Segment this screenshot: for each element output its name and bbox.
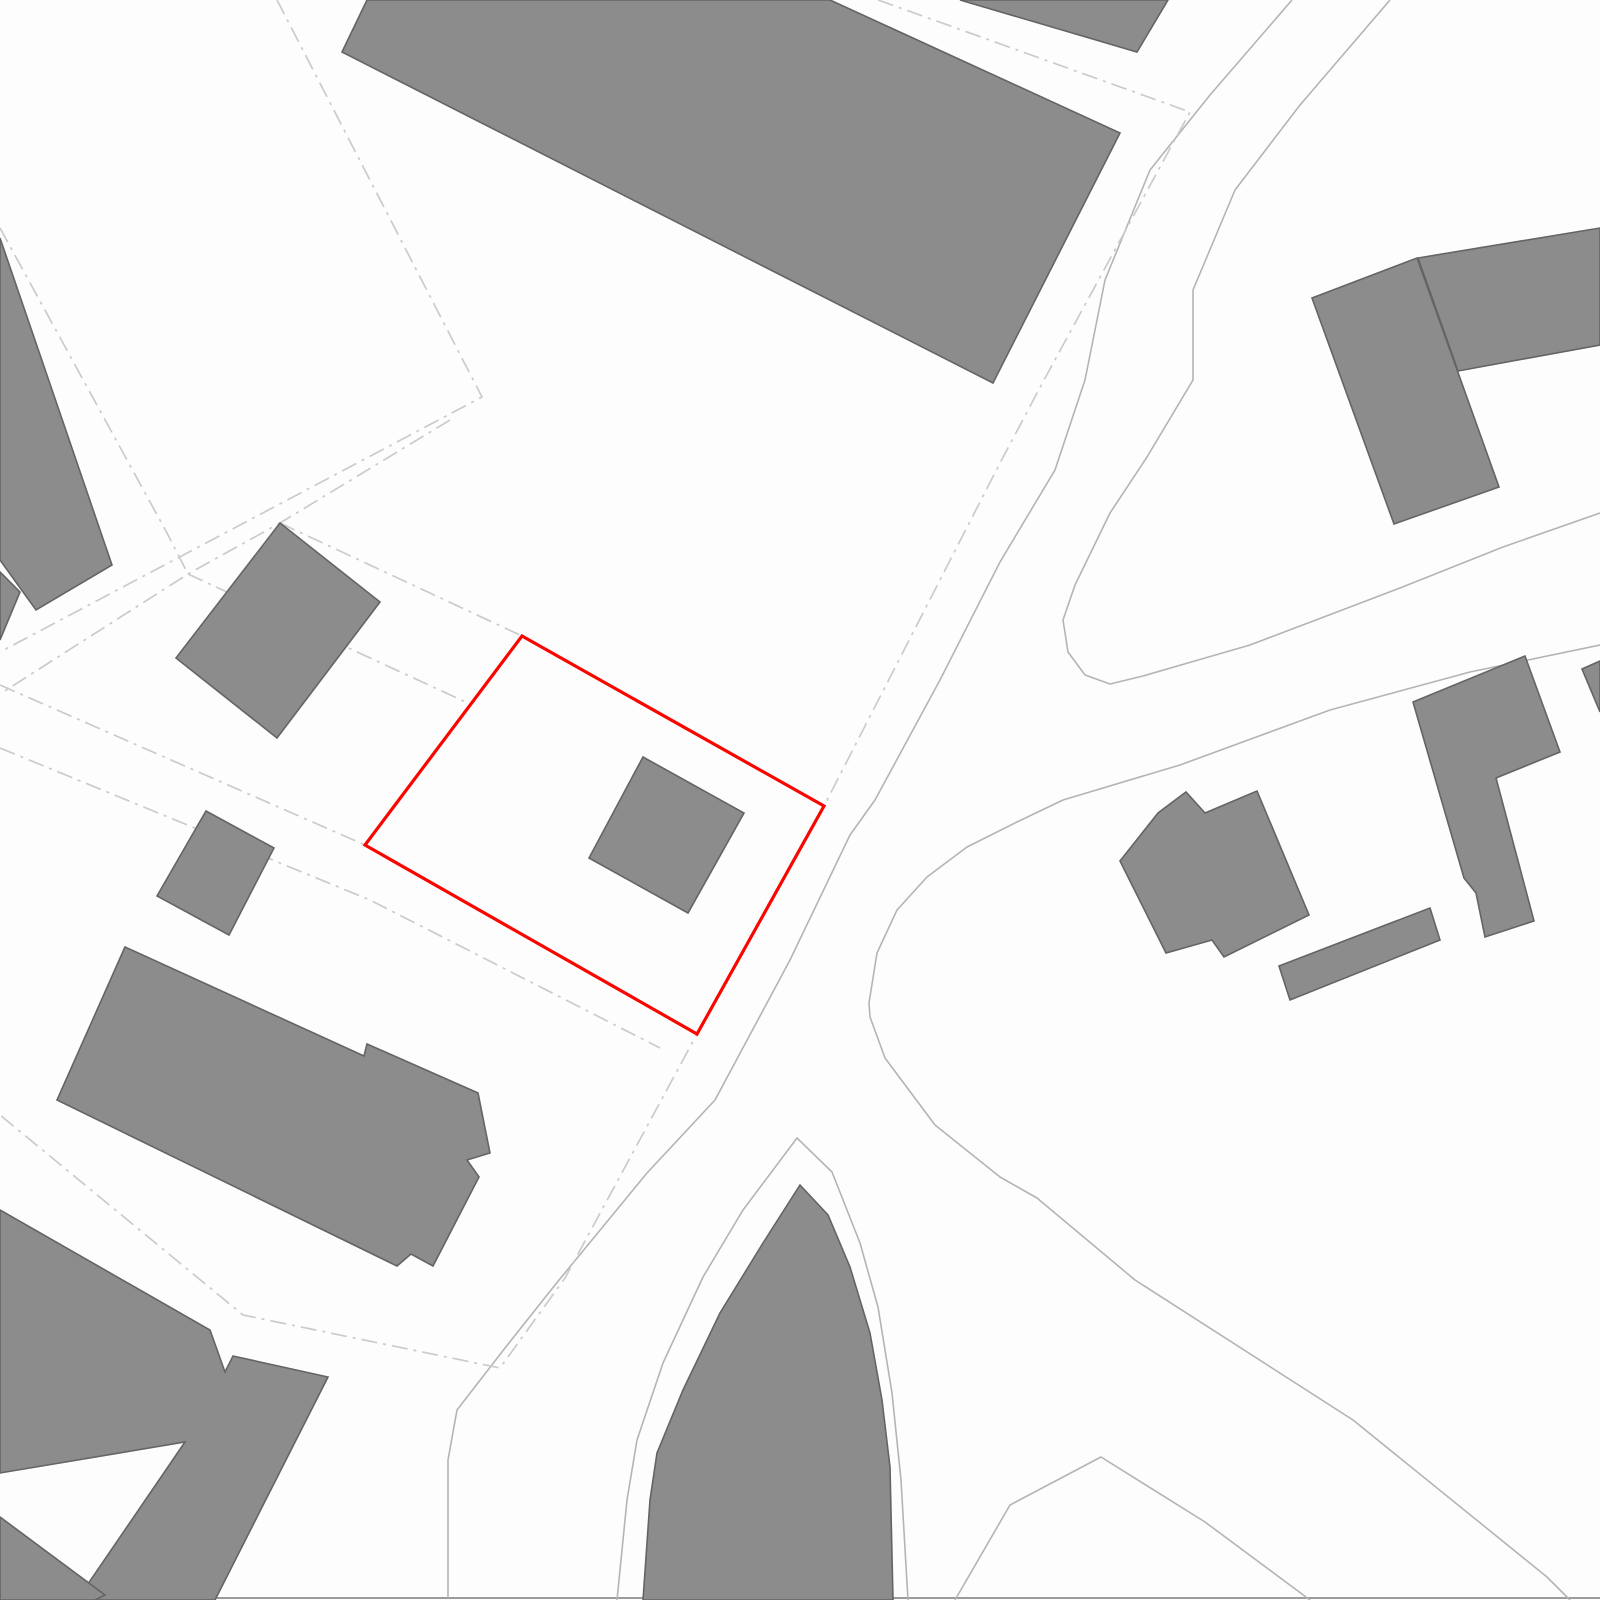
building-on-site-parcel xyxy=(589,757,744,913)
building-east-cross xyxy=(1120,791,1309,957)
building-west-tiny xyxy=(157,811,274,935)
building-north-large xyxy=(342,0,1120,383)
boundary-track-upper xyxy=(0,685,365,845)
southeast-arch-kerb xyxy=(955,1457,1310,1600)
building-south-island xyxy=(643,1185,893,1600)
site-plan-map xyxy=(0,0,1600,1600)
site-plan-svg xyxy=(0,0,1600,1600)
building-west-edge-upper xyxy=(0,238,112,610)
highlighted-site-parcel xyxy=(365,636,824,1034)
building-north-wedge xyxy=(960,0,1168,52)
building-right-edge-sliver xyxy=(1582,661,1600,712)
building-east-notched xyxy=(1413,656,1560,937)
boundary-track-lower xyxy=(0,748,660,1048)
building-east-bar xyxy=(1279,908,1440,1000)
building-southwest-long xyxy=(57,947,490,1266)
building-southwest-corner xyxy=(0,1210,328,1600)
building-corner-triangle xyxy=(0,1517,105,1600)
